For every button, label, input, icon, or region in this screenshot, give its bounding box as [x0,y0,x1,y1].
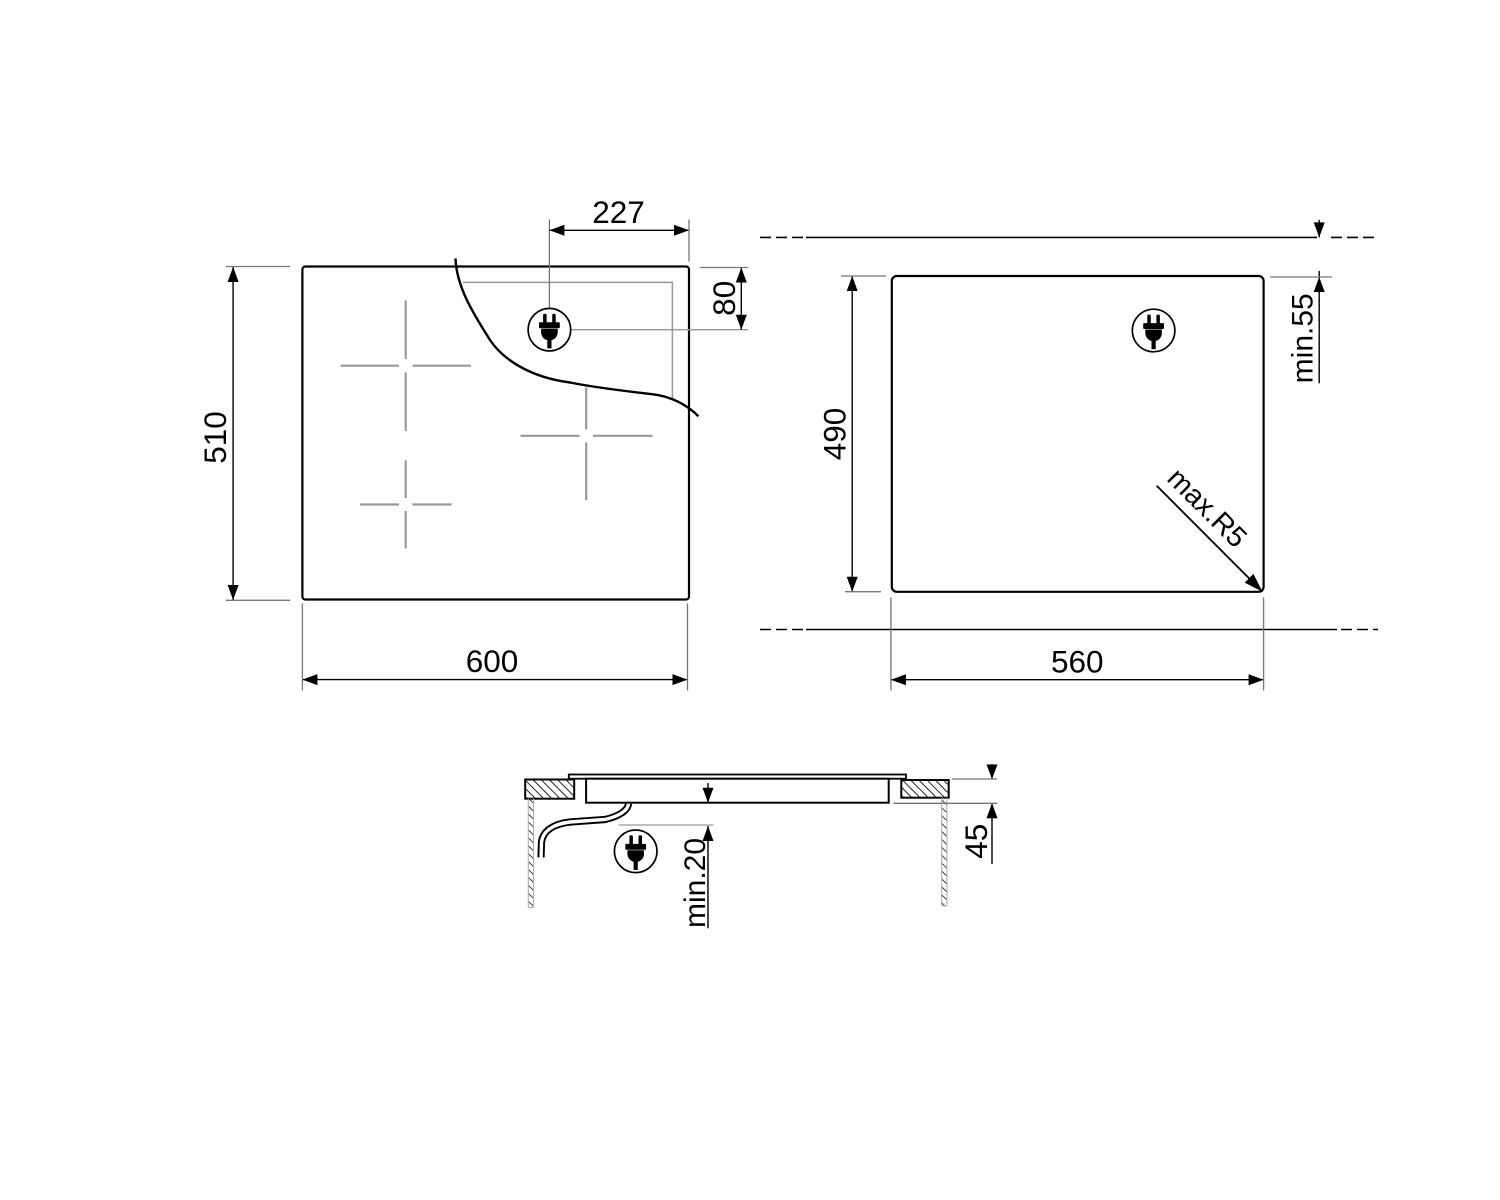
svg-text:600: 600 [466,643,519,679]
svg-text:80: 80 [706,281,742,316]
svg-text:45: 45 [958,824,994,859]
svg-text:490: 490 [817,408,853,461]
svg-text:510: 510 [197,411,233,464]
svg-text:min.20: min.20 [679,838,712,928]
svg-text:227: 227 [592,194,645,230]
svg-text:min.55: min.55 [1286,293,1319,383]
svg-text:560: 560 [1051,644,1104,680]
